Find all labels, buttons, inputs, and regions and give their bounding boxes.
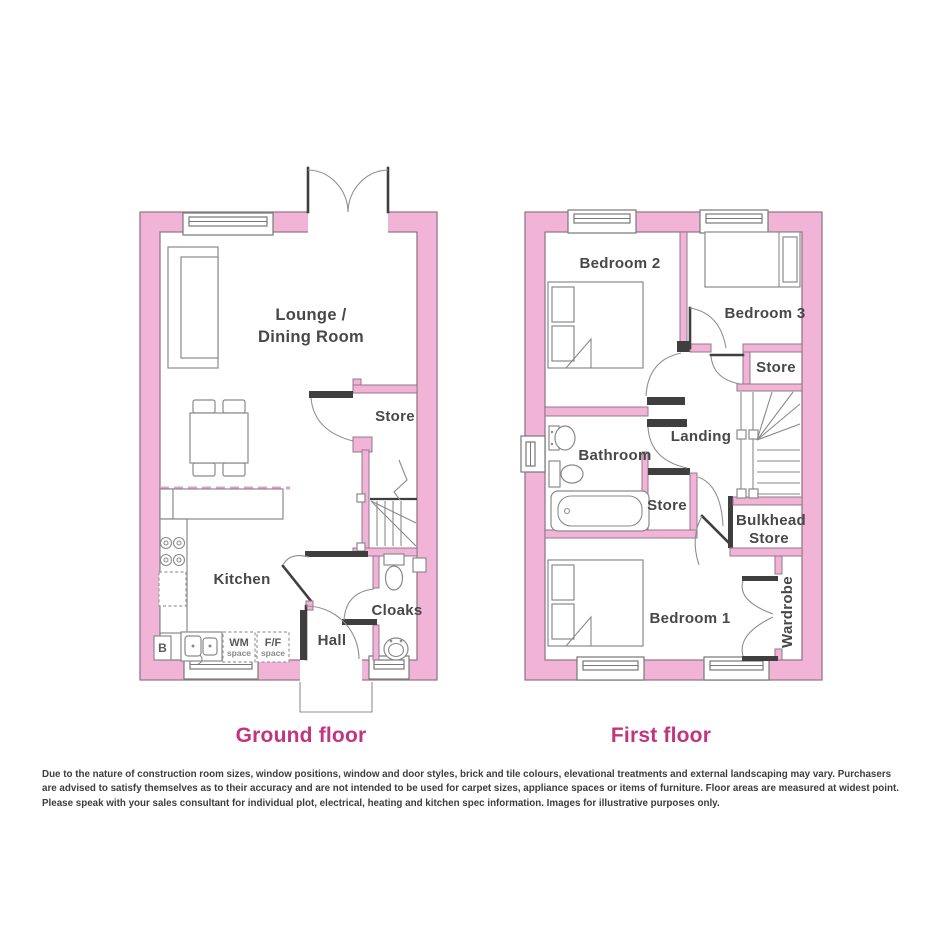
wardrobe-label: Wardrobe [779,576,796,648]
porch-outline [300,682,372,712]
first-floor-plan: Bedroom 2 Bedroom 3 Store Landing Bathro… [515,205,830,690]
single-bed-icon [705,232,800,287]
window-icon [568,210,636,233]
bedroom2-label: Bedroom 2 [579,255,660,272]
first-floor-title: First floor [541,724,781,748]
window-icon [521,436,545,472]
dining-table-icon [190,400,248,476]
wardrobe-doors-icon [742,576,778,661]
ground-floor-title: Ground floor [181,724,421,748]
cloaks-label: Cloaks [372,602,423,619]
store-mid-label: Store [647,497,687,514]
boiler-label: B [158,641,167,655]
ground-store-label: Store [375,408,415,425]
disclaimer-text: Due to the nature of construction room s… [42,768,908,811]
window-icon [183,213,273,235]
window-icon [700,210,768,233]
bath-icon [551,491,649,531]
hall-wall-stub [305,551,368,557]
bedroom2-door-icon [646,353,681,396]
hall-label: Hall [318,632,347,649]
bedroom1-door-icon [695,516,730,565]
toilet-icon [549,461,583,487]
front-door-opening [300,657,362,682]
store-upper-door-icon [711,355,743,384]
lounge-label-line1: Lounge / [275,306,346,324]
toilet-icon [384,554,404,590]
floorplan-page: WM space F/F space B [0,0,945,945]
bedroom1-label: Bedroom 1 [649,610,730,627]
basin-icon [549,426,575,450]
kitchen-counter-icon [160,489,283,633]
bulkhead-label-line1: Bulkhead [736,512,806,529]
ground-floor-plan: WM space F/F space B [130,160,460,720]
store-mid-door-icon [698,477,723,526]
sofa-icon [168,247,218,368]
bulkhead-label-line2: Store [749,530,789,547]
bedroom3-label: Bedroom 3 [724,305,805,322]
window-icon [577,657,644,680]
oven-space [159,572,186,606]
french-doors-icon [308,168,388,212]
sink-icon [181,632,222,664]
store-upper-label: Store [756,359,796,376]
ff-sub-label: space [261,648,285,658]
bedroom3-door-icon [690,308,726,348]
bathroom-label: Bathroom [578,447,651,464]
landing-label: Landing [671,428,731,445]
wm-sub-label: space [227,648,251,658]
lounge-label-line2: Dining Room [258,328,364,346]
double-bed-icon [548,560,643,646]
double-bed-icon [548,282,643,368]
stairs-icon [737,392,800,498]
radiator-icon [413,558,426,572]
basin-icon [384,638,408,660]
french-door-opening [308,210,388,235]
kitchen-label: Kitchen [213,571,270,588]
